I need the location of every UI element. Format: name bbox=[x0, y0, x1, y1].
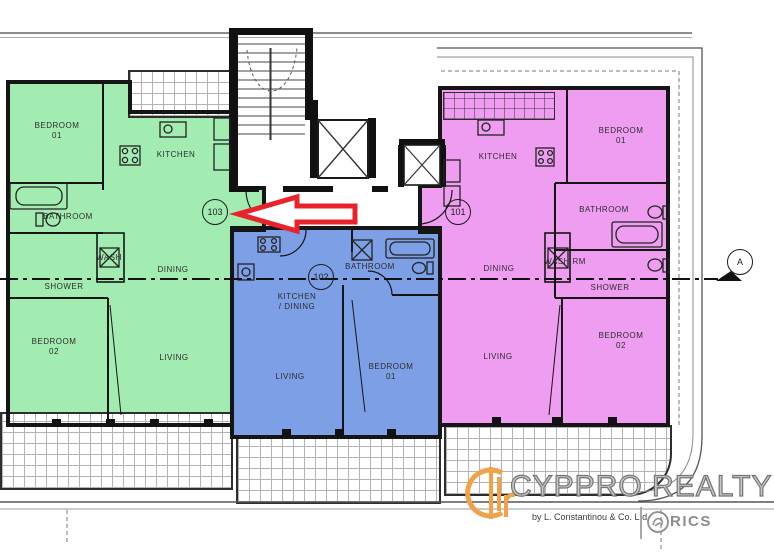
logo-divider bbox=[640, 507, 642, 539]
unit-102-area bbox=[232, 228, 440, 437]
room-label-103-wash: WASH bbox=[96, 253, 122, 263]
cyppro-realty-logo: CYPPRO REALTY by L. Constantinou & Co. L… bbox=[460, 455, 774, 552]
room-label-101-bedroom2: BEDROOM 02 bbox=[599, 331, 644, 351]
room-label-102-kitchen-dining: KITCHEN / DINING bbox=[278, 292, 317, 312]
logo-brand-text: CYPPRO REALTY bbox=[510, 470, 773, 504]
unit-103-top-balcony bbox=[128, 70, 234, 118]
unit-number-103: 103 bbox=[207, 207, 222, 217]
room-label-102-bathroom: BATHROOM bbox=[345, 262, 395, 272]
elevator-shafts bbox=[310, 100, 446, 192]
logo-byline: by L. Constantinou & Co. Ltd bbox=[532, 512, 647, 522]
room-label-101-kitchen: KITCHEN bbox=[479, 152, 518, 162]
room-label-101-living: LIVING bbox=[483, 352, 512, 362]
terrace-middle bbox=[236, 437, 441, 504]
room-label-101-shower: SHOWER bbox=[591, 283, 630, 293]
room-label-103-bedroom2: BEDROOM 02 bbox=[32, 337, 77, 357]
rics-label: RICS bbox=[670, 513, 712, 530]
unit-badge-101: 101 bbox=[445, 199, 471, 225]
room-label-103-kitchen: KITCHEN bbox=[157, 150, 196, 160]
section-marker-a: A bbox=[727, 249, 753, 275]
rics-icon bbox=[646, 510, 670, 534]
section-marker-letter: A bbox=[737, 257, 743, 267]
room-label-103-dining: DINING bbox=[158, 265, 189, 275]
room-label-102-living: LIVING bbox=[275, 372, 304, 382]
floor-plan: BEDROOM 01 KITCHEN BATHROOM WASH SHOWER … bbox=[0, 0, 774, 552]
room-label-101-bedroom1: BEDROOM 01 bbox=[599, 126, 644, 146]
terrace-left bbox=[0, 412, 233, 490]
room-label-101-wash: WASH RM bbox=[544, 257, 586, 267]
unit-101-entrance-vestibule bbox=[420, 186, 442, 232]
room-label-103-bedroom1: BEDROOM 01 bbox=[35, 121, 80, 141]
unit-number-101: 101 bbox=[450, 207, 465, 217]
room-label-102-bedroom1: BEDROOM 01 bbox=[369, 362, 414, 382]
room-label-103-shower: SHOWER bbox=[45, 282, 84, 292]
staircase bbox=[229, 28, 313, 192]
unit-101-top-balcony bbox=[443, 92, 555, 120]
unit-badge-102: 102 bbox=[308, 264, 334, 290]
unit-badge-103: 103 bbox=[202, 199, 228, 225]
room-label-103-bathroom: BATHROOM bbox=[43, 212, 93, 222]
room-label-103-living: LIVING bbox=[159, 353, 188, 363]
room-label-101-bathroom: BATHROOM bbox=[579, 205, 629, 215]
roof-edge-lines bbox=[0, 33, 692, 38]
room-label-101-dining: DINING bbox=[484, 264, 515, 274]
cyppro-logo-icon bbox=[464, 463, 516, 523]
unit-number-102: 102 bbox=[313, 272, 328, 282]
